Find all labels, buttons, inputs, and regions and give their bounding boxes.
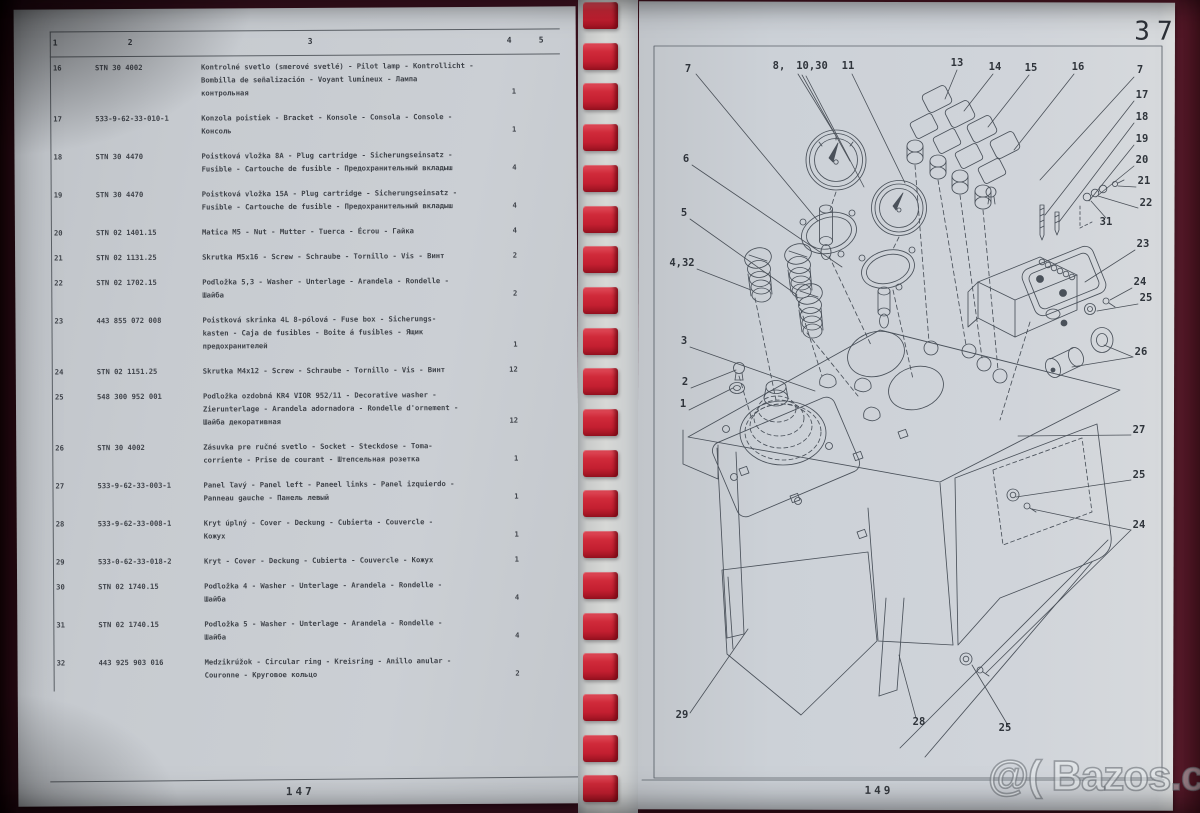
column-header-2: 2 — [128, 38, 133, 47]
cell-qty: 2 — [502, 287, 517, 300]
cell-no: 20 — [54, 226, 96, 239]
cell-part: STN 02 1151.25 — [97, 365, 203, 379]
table-row: 24STN 02 1151.25Skrutka M4x12 - Screw - … — [55, 362, 578, 378]
cell-qty: 1 — [504, 553, 519, 566]
binding-tooth — [583, 450, 618, 477]
cell-col5 — [519, 577, 549, 603]
table-row: 32443 925 903 016Medzikrúžok - Circular … — [57, 653, 580, 682]
cell-desc: Kryt úplný - Cover - Deckung - Cubierta … — [204, 515, 504, 543]
page-number-right: 149 — [849, 784, 909, 797]
cell-qty: 1 — [503, 452, 518, 465]
binding-tooth — [583, 43, 618, 70]
footer-rule — [50, 776, 578, 782]
cell-part: 533-9-62-33-010-1 — [95, 112, 201, 139]
cell-part: STN 30 4470 — [96, 188, 202, 215]
cell-part: 533-9-62-33-003-1 — [97, 479, 203, 506]
cell-col5 — [519, 514, 549, 540]
table-row: 16STN 30 4002Kontrolné svetlo (smerové s… — [53, 58, 576, 100]
binding-tooth — [583, 653, 618, 680]
cell-col5 — [518, 387, 548, 426]
cell-qty: 1 — [501, 85, 516, 98]
cell-no: 28 — [56, 517, 98, 543]
cell-col5 — [516, 109, 546, 135]
binding-tooth — [583, 490, 618, 517]
binding-tooth — [583, 368, 618, 395]
cell-no: 18 — [53, 150, 95, 176]
binding-tooth — [583, 694, 618, 721]
binding-tooth — [583, 287, 618, 314]
cell-no: 32 — [57, 656, 99, 682]
binding-tooth — [583, 775, 618, 802]
cell-no: 21 — [54, 251, 96, 264]
cell-desc: Konzola poistiek - Bracket - Konsole - C… — [201, 110, 501, 138]
cell-desc: Poistková vložka 8A - Plug cartridge - S… — [201, 148, 501, 176]
cell-col5 — [516, 58, 546, 97]
cell-desc: Podložka 4 - Washer - Unterlage - Arande… — [204, 578, 504, 606]
cell-no: 17 — [53, 112, 95, 138]
column-header-3: 3 — [308, 37, 313, 46]
cell-part: 533-9-62-33-008-1 — [98, 517, 204, 544]
cell-col5 — [518, 362, 548, 375]
cell-col5 — [518, 476, 548, 502]
cell-no: 25 — [55, 390, 97, 429]
cell-no: 22 — [54, 276, 96, 302]
cell-qty: 4 — [504, 591, 519, 604]
cell-desc: Skrutka M5x16 - Screw - Schraube - Torni… — [202, 249, 502, 264]
binding-tooth — [583, 206, 618, 233]
table-row: 23443 855 072 008Poistková skrinka 4L 8-… — [54, 311, 577, 353]
cell-col5 — [517, 311, 547, 350]
cell-desc: Panel ľavý - Panel left - Paneel links -… — [203, 477, 503, 505]
cell-part: STN 30 4002 — [95, 61, 201, 101]
cell-part: STN 02 1740.15 — [98, 618, 204, 645]
table-row: 19STN 30 4470Poistková vložka 15A - Plug… — [54, 185, 577, 214]
cell-qty: 12 — [503, 363, 518, 376]
chapter-number: 37 — [1117, 17, 1197, 47]
cell-col5 — [517, 273, 547, 299]
cell-no: 27 — [55, 479, 97, 505]
cell-part: 443 925 903 016 — [99, 656, 205, 683]
binding-tooth — [583, 409, 618, 436]
table-row: 18STN 30 4470Poistková vložka 8A - Plug … — [53, 147, 576, 176]
table-top-rule — [50, 28, 560, 32]
cell-desc: Kryt - Cover - Deckung - Cubierta - Couv… — [204, 553, 504, 568]
cell-desc: Podložka ozdobná KR4 VIOR 952/11 - Decor… — [203, 388, 503, 429]
cell-part: 548 300 952 001 — [97, 390, 203, 430]
table-row: 17533-9-62-33-010-1Konzola poistiek - Br… — [53, 109, 576, 138]
cell-desc: Medzikrúžok - Circular ring - Kreisring … — [205, 654, 505, 682]
cell-desc: Podložka 5 - Washer - Unterlage - Arande… — [204, 616, 504, 644]
cell-desc: Kontrolné svetlo (smerové svetlé) - Pilo… — [201, 59, 501, 100]
cell-col5 — [518, 438, 548, 464]
binding-tooth — [583, 328, 618, 355]
cell-qty: 2 — [505, 667, 520, 680]
binding-tooth — [583, 572, 618, 599]
cell-col5 — [517, 185, 547, 211]
table-row: 29533-0-62-33-018-2Kryt - Cover - Deckun… — [56, 552, 579, 568]
cell-col5 — [519, 552, 549, 565]
cell-desc: Zásuvka pre ručné svetlo - Socket - Stec… — [203, 439, 503, 467]
binding-tooth — [583, 531, 618, 558]
cell-no: 23 — [54, 314, 96, 353]
cell-part: STN 30 4002 — [97, 441, 203, 468]
cell-qty: 4 — [502, 161, 517, 174]
binding-tooth — [583, 124, 618, 151]
table-row: 27533-9-62-33-003-1Panel ľavý - Panel le… — [55, 476, 578, 505]
cell-part: 533-0-62-33-018-2 — [98, 555, 204, 569]
cell-desc: Matica M5 - Nut - Mutter - Tuerca - Écro… — [202, 224, 502, 239]
page-number-left: 147 — [270, 785, 330, 798]
cell-part: STN 02 1740.15 — [98, 580, 204, 607]
binding-tooth — [583, 246, 618, 273]
left-page: 1 2 3 4 5 16STN 30 4002Kontrolné svetlo … — [14, 6, 581, 806]
cell-no: 19 — [54, 188, 96, 214]
photo-of-open-manual: 1 2 3 4 5 16STN 30 4002Kontrolné svetlo … — [0, 0, 1200, 813]
cell-no: 31 — [56, 618, 98, 644]
cell-desc: Poistková vložka 15A - Plug cartridge - … — [202, 186, 502, 214]
cell-col5 — [517, 223, 547, 236]
table-header-rule — [50, 53, 560, 57]
cell-no: 29 — [56, 555, 98, 568]
column-header-1: 1 — [53, 38, 58, 47]
cell-qty: 2 — [502, 249, 517, 262]
watermark: @( Bazos.cz — [988, 752, 1200, 800]
table-row: 22STN 02 1702.15Podložka 5,3 - Washer - … — [54, 273, 577, 302]
binding-tooth — [583, 83, 618, 110]
cell-col5 — [517, 248, 547, 261]
cell-col5 — [516, 147, 546, 173]
cell-qty: 1 — [504, 490, 519, 503]
cell-qty: 1 — [504, 528, 519, 541]
cell-no: 24 — [55, 365, 97, 378]
cell-qty: 12 — [503, 414, 518, 427]
column-header-4: 4 — [507, 36, 512, 45]
parts-table-body: 16STN 30 4002Kontrolné svetlo (smerové s… — [14, 58, 580, 694]
table-row: 28533-9-62-33-008-1Kryt úplný - Cover - … — [56, 514, 579, 543]
cell-desc: Skrutka M4x12 - Screw - Schraube - Torni… — [203, 363, 503, 378]
cell-part: STN 30 4470 — [95, 150, 201, 177]
cell-desc: Poistková skrinka 4L 8-pólová - Fuse box… — [202, 312, 502, 353]
right-page: 37 149 — [637, 1, 1175, 810]
cell-no: 30 — [56, 580, 98, 606]
table-row: 20STN 02 1401.15Matica M5 - Nut - Mutter… — [54, 223, 577, 239]
table-row: 31STN 02 1740.15Podložka 5 - Washer - Un… — [56, 615, 579, 644]
table-row: 25548 300 952 001Podložka ozdobná KR4 VI… — [55, 387, 578, 429]
cell-part: STN 02 1401.15 — [96, 226, 202, 240]
cell-qty: 1 — [503, 338, 518, 351]
column-header-5: 5 — [539, 35, 544, 44]
cell-qty: 1 — [501, 123, 516, 136]
cell-no: 16 — [53, 61, 95, 100]
cell-col5 — [519, 615, 549, 641]
cell-part: 443 855 072 008 — [96, 314, 202, 354]
cell-col5 — [520, 653, 550, 679]
cell-qty: 4 — [502, 199, 517, 212]
cell-qty: 4 — [502, 224, 517, 237]
cell-desc: Podložka 5,3 - Washer - Unterlage - Aran… — [202, 274, 502, 302]
cell-no: 26 — [55, 441, 97, 467]
spiral-binding — [578, 0, 638, 813]
cell-part: STN 02 1131.25 — [96, 251, 202, 265]
binding-tooth — [583, 735, 618, 762]
cell-part: STN 02 1702.15 — [96, 276, 202, 303]
table-row: 26STN 30 4002Zásuvka pre ručné svetlo - … — [55, 438, 578, 467]
cell-qty: 4 — [504, 629, 519, 642]
binding-tooth — [583, 2, 618, 29]
binding-tooth — [583, 165, 618, 192]
table-row: 21STN 02 1131.25Skrutka M5x16 - Screw - … — [54, 248, 577, 264]
table-row: 30STN 02 1740.15Podložka 4 - Washer - Un… — [56, 577, 579, 606]
binding-tooth — [583, 613, 618, 640]
